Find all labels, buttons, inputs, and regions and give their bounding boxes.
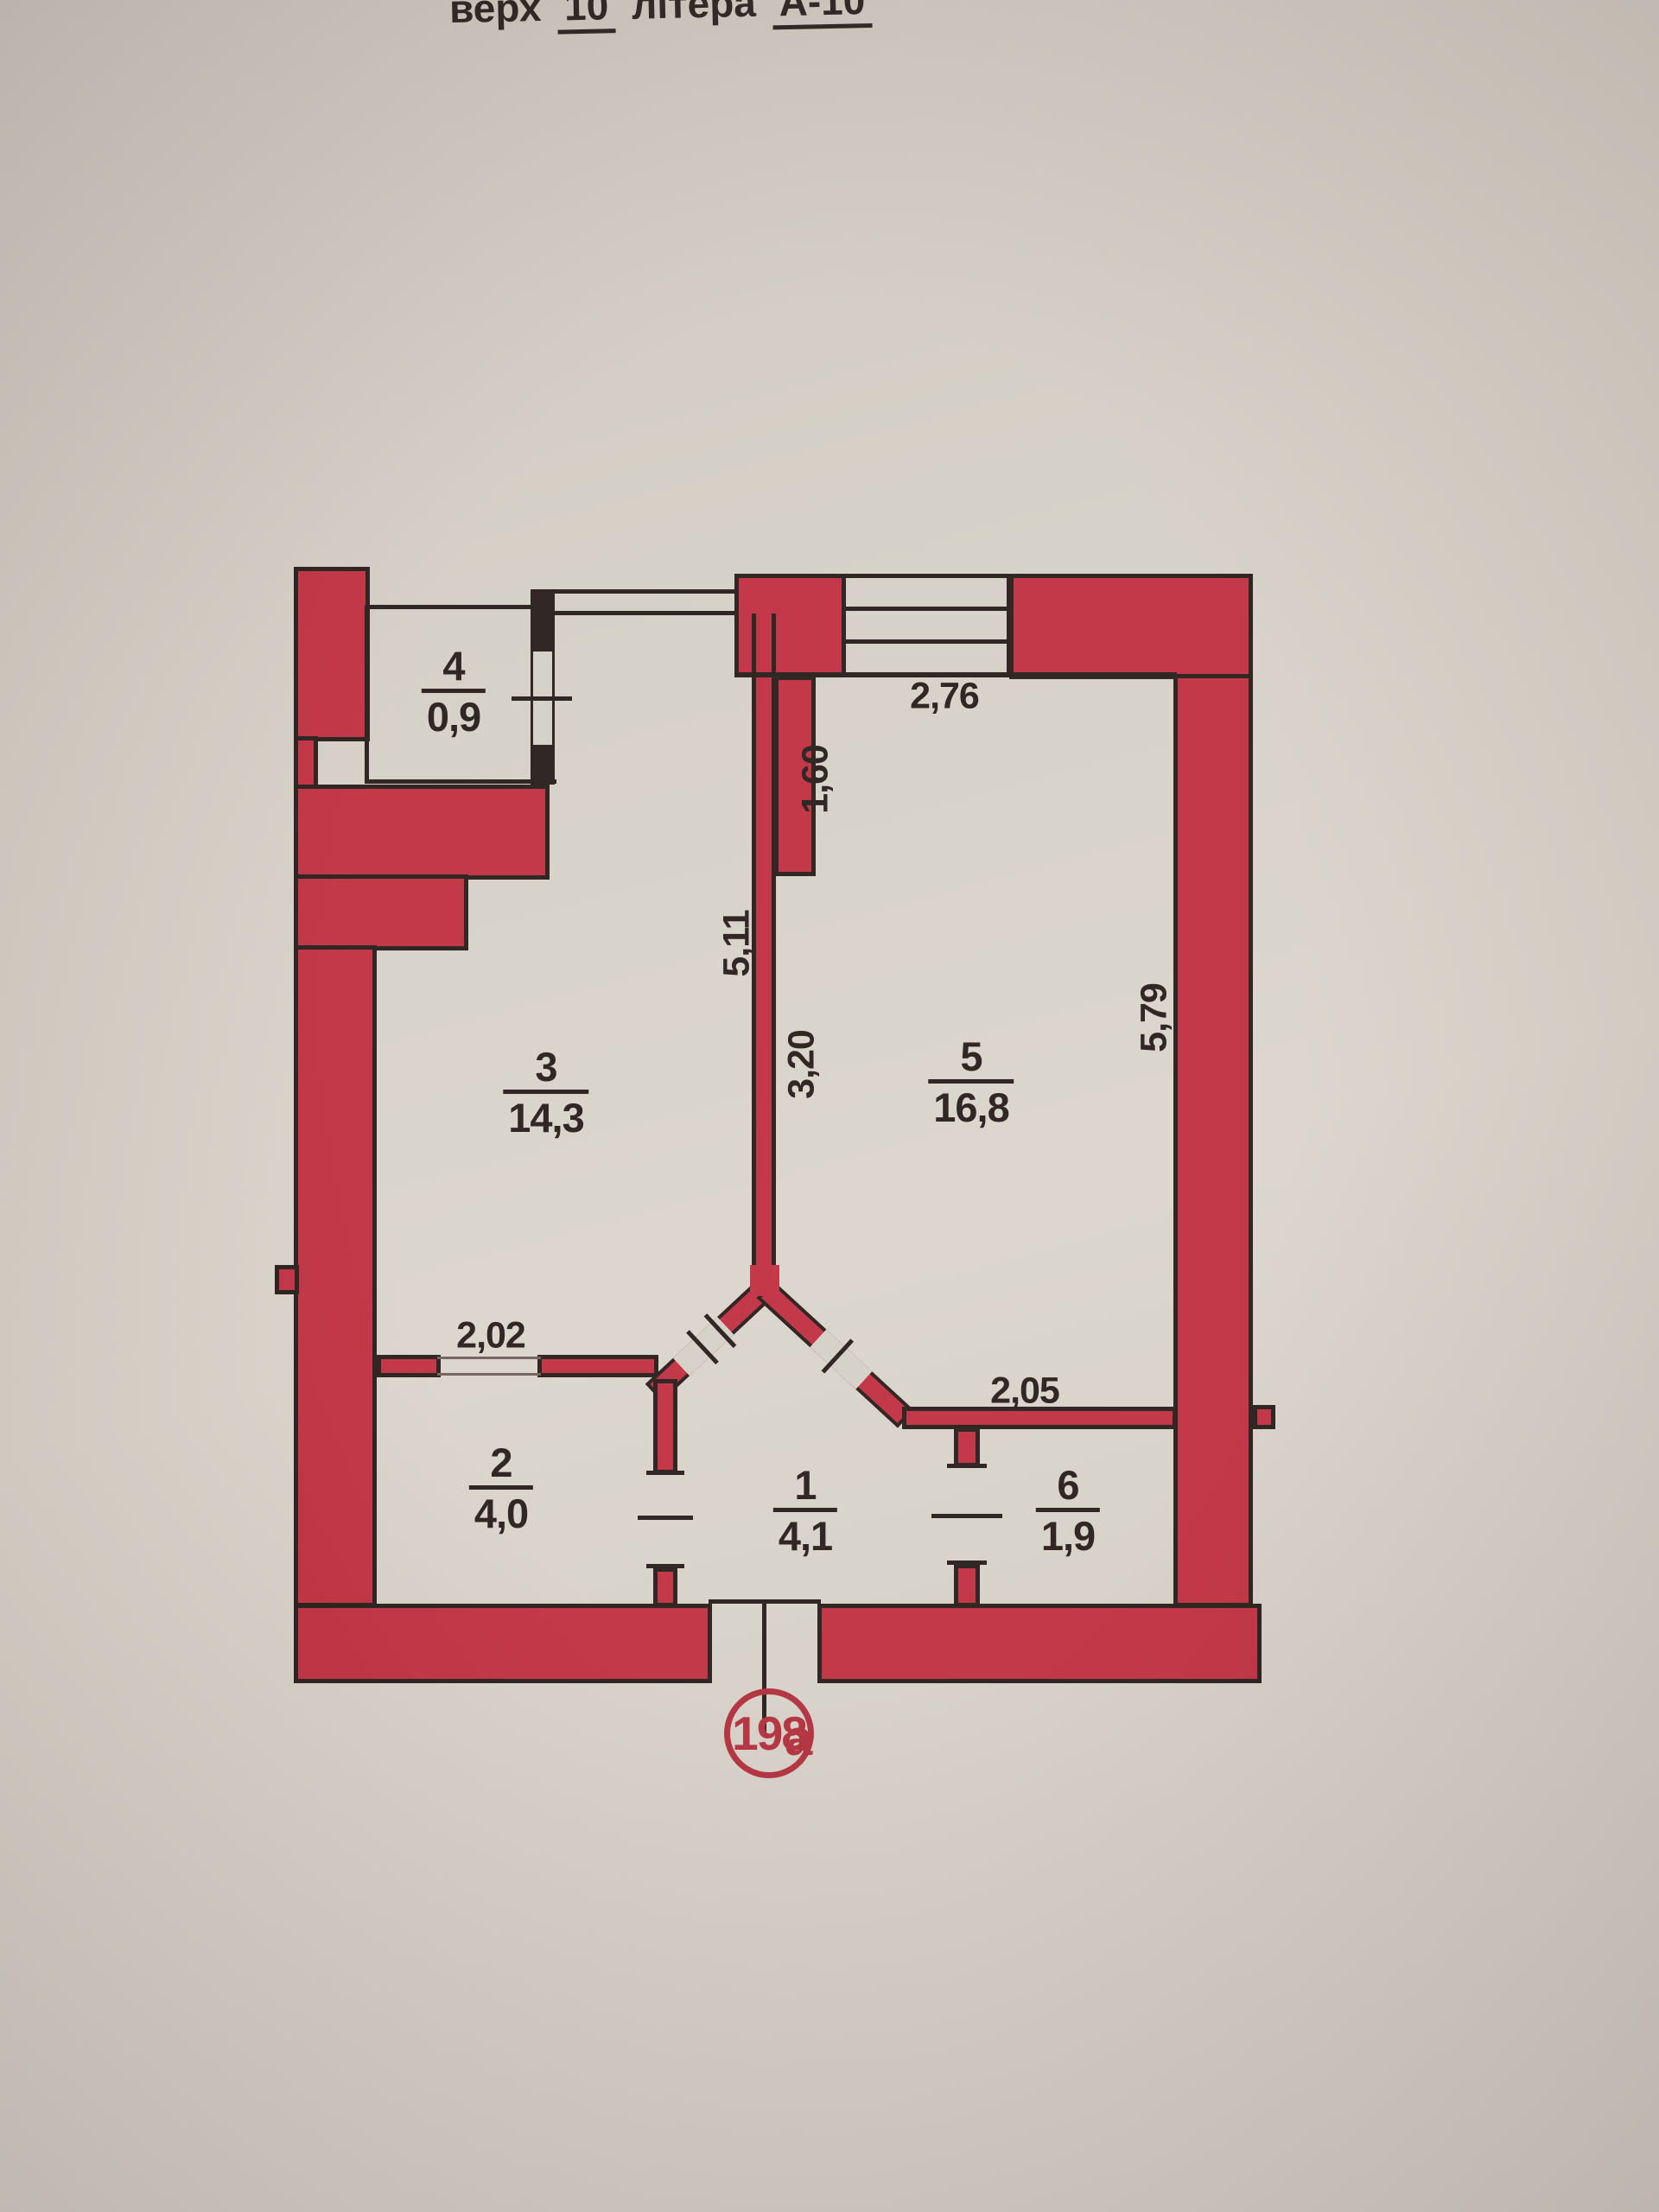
room-number: 3 xyxy=(531,1046,560,1090)
dimension-5-79: 5,79 xyxy=(1134,983,1176,1052)
room-number: 4 xyxy=(439,645,467,689)
room-label-3: 3 14,3 xyxy=(503,1046,588,1138)
wall-segment-right-bump xyxy=(1253,1405,1275,1429)
header-building-letter: А-10 xyxy=(772,0,873,29)
window-glazing-line xyxy=(846,639,1007,644)
room-label-4: 4 0,9 xyxy=(422,645,486,737)
door-frame-line xyxy=(947,1560,987,1565)
room-label-1: 1 4,1 xyxy=(773,1465,837,1556)
wall-segment-room2-room1-upper xyxy=(653,1379,677,1474)
balcony-left-wall xyxy=(365,605,369,784)
room-label-5: 5 16,8 xyxy=(928,1036,1014,1128)
door-tick-mark xyxy=(638,1516,693,1520)
balcony-window-tick xyxy=(512,696,572,701)
door-tick-mark xyxy=(931,1514,1002,1518)
wall-segment-right-main xyxy=(1173,674,1253,1607)
wall-segment-left-strip xyxy=(294,736,318,790)
room-number: 1 xyxy=(791,1465,819,1508)
balcony-bottom-wall xyxy=(365,779,556,784)
room-area: 1,9 xyxy=(1036,1508,1100,1556)
header-prefix: верх xyxy=(448,0,541,31)
wall-segment-room1-room6-lower xyxy=(954,1564,980,1607)
opening-edge-line xyxy=(437,1373,541,1376)
wall-junction-patch xyxy=(750,1265,779,1296)
room-label-2: 2 4,0 xyxy=(469,1442,533,1534)
wall-segment-left-step xyxy=(294,874,468,950)
wall-segment-under-balcony xyxy=(294,785,550,880)
wall-segment-room3-room2-right xyxy=(537,1355,658,1377)
dimension-3-20: 3,20 xyxy=(781,1030,823,1099)
room-area: 14,3 xyxy=(503,1090,588,1138)
wall-segment-room1-room6-upper xyxy=(954,1427,980,1467)
header-label-word: літера xyxy=(631,0,756,28)
wall-segment-room2-room1-lower xyxy=(653,1567,677,1607)
stamp-suffix-letter: а xyxy=(785,1709,812,1767)
door-frame-line xyxy=(646,1564,684,1568)
wall-segment-left-main xyxy=(294,945,377,1607)
window-glazing-line xyxy=(846,607,1007,611)
top-thin-wall-inner-line xyxy=(531,611,738,615)
dimension-5-11: 5,11 xyxy=(716,910,759,976)
dimension-1-60: 1,60 xyxy=(795,745,837,814)
dimension-2-05: 2,05 xyxy=(990,1370,1059,1413)
balcony-top-wall xyxy=(365,605,539,609)
room-area: 4,1 xyxy=(773,1508,837,1556)
header-floor-number: 10 xyxy=(557,0,616,35)
door-opening-room5 xyxy=(810,1330,872,1389)
window-symbol xyxy=(842,574,1011,677)
wall-segment-bottom-right xyxy=(817,1604,1262,1683)
wall-segment-bottom-left xyxy=(294,1604,712,1683)
door-frame-line xyxy=(646,1471,684,1475)
top-thin-wall-outer-line xyxy=(531,589,738,594)
wall-segment-top-right-block xyxy=(1009,574,1253,679)
room-label-6: 6 1,9 xyxy=(1036,1465,1100,1556)
room-area: 4,0 xyxy=(469,1485,533,1534)
dimension-2-76: 2,76 xyxy=(910,676,979,718)
room-number: 5 xyxy=(957,1036,985,1079)
dimension-2-02: 2,02 xyxy=(456,1315,525,1357)
room-area: 0,9 xyxy=(422,689,486,737)
wall-segment-room3-room2-left xyxy=(377,1355,441,1377)
page-header-note: верх 10 літера А-10 xyxy=(448,0,878,36)
diagonal-wall-to-room5 xyxy=(757,1281,914,1428)
door-frame-line xyxy=(947,1464,987,1468)
room-area: 16,8 xyxy=(928,1079,1014,1128)
room-number: 2 xyxy=(486,1442,515,1485)
wall-segment-left-notch xyxy=(275,1265,299,1294)
room-number: 6 xyxy=(1053,1465,1082,1508)
wall-segment-top-left-pier xyxy=(294,567,370,741)
scanned-floor-plan-page: { "header": { "visible_fragment_prefix":… xyxy=(0,0,1659,2212)
